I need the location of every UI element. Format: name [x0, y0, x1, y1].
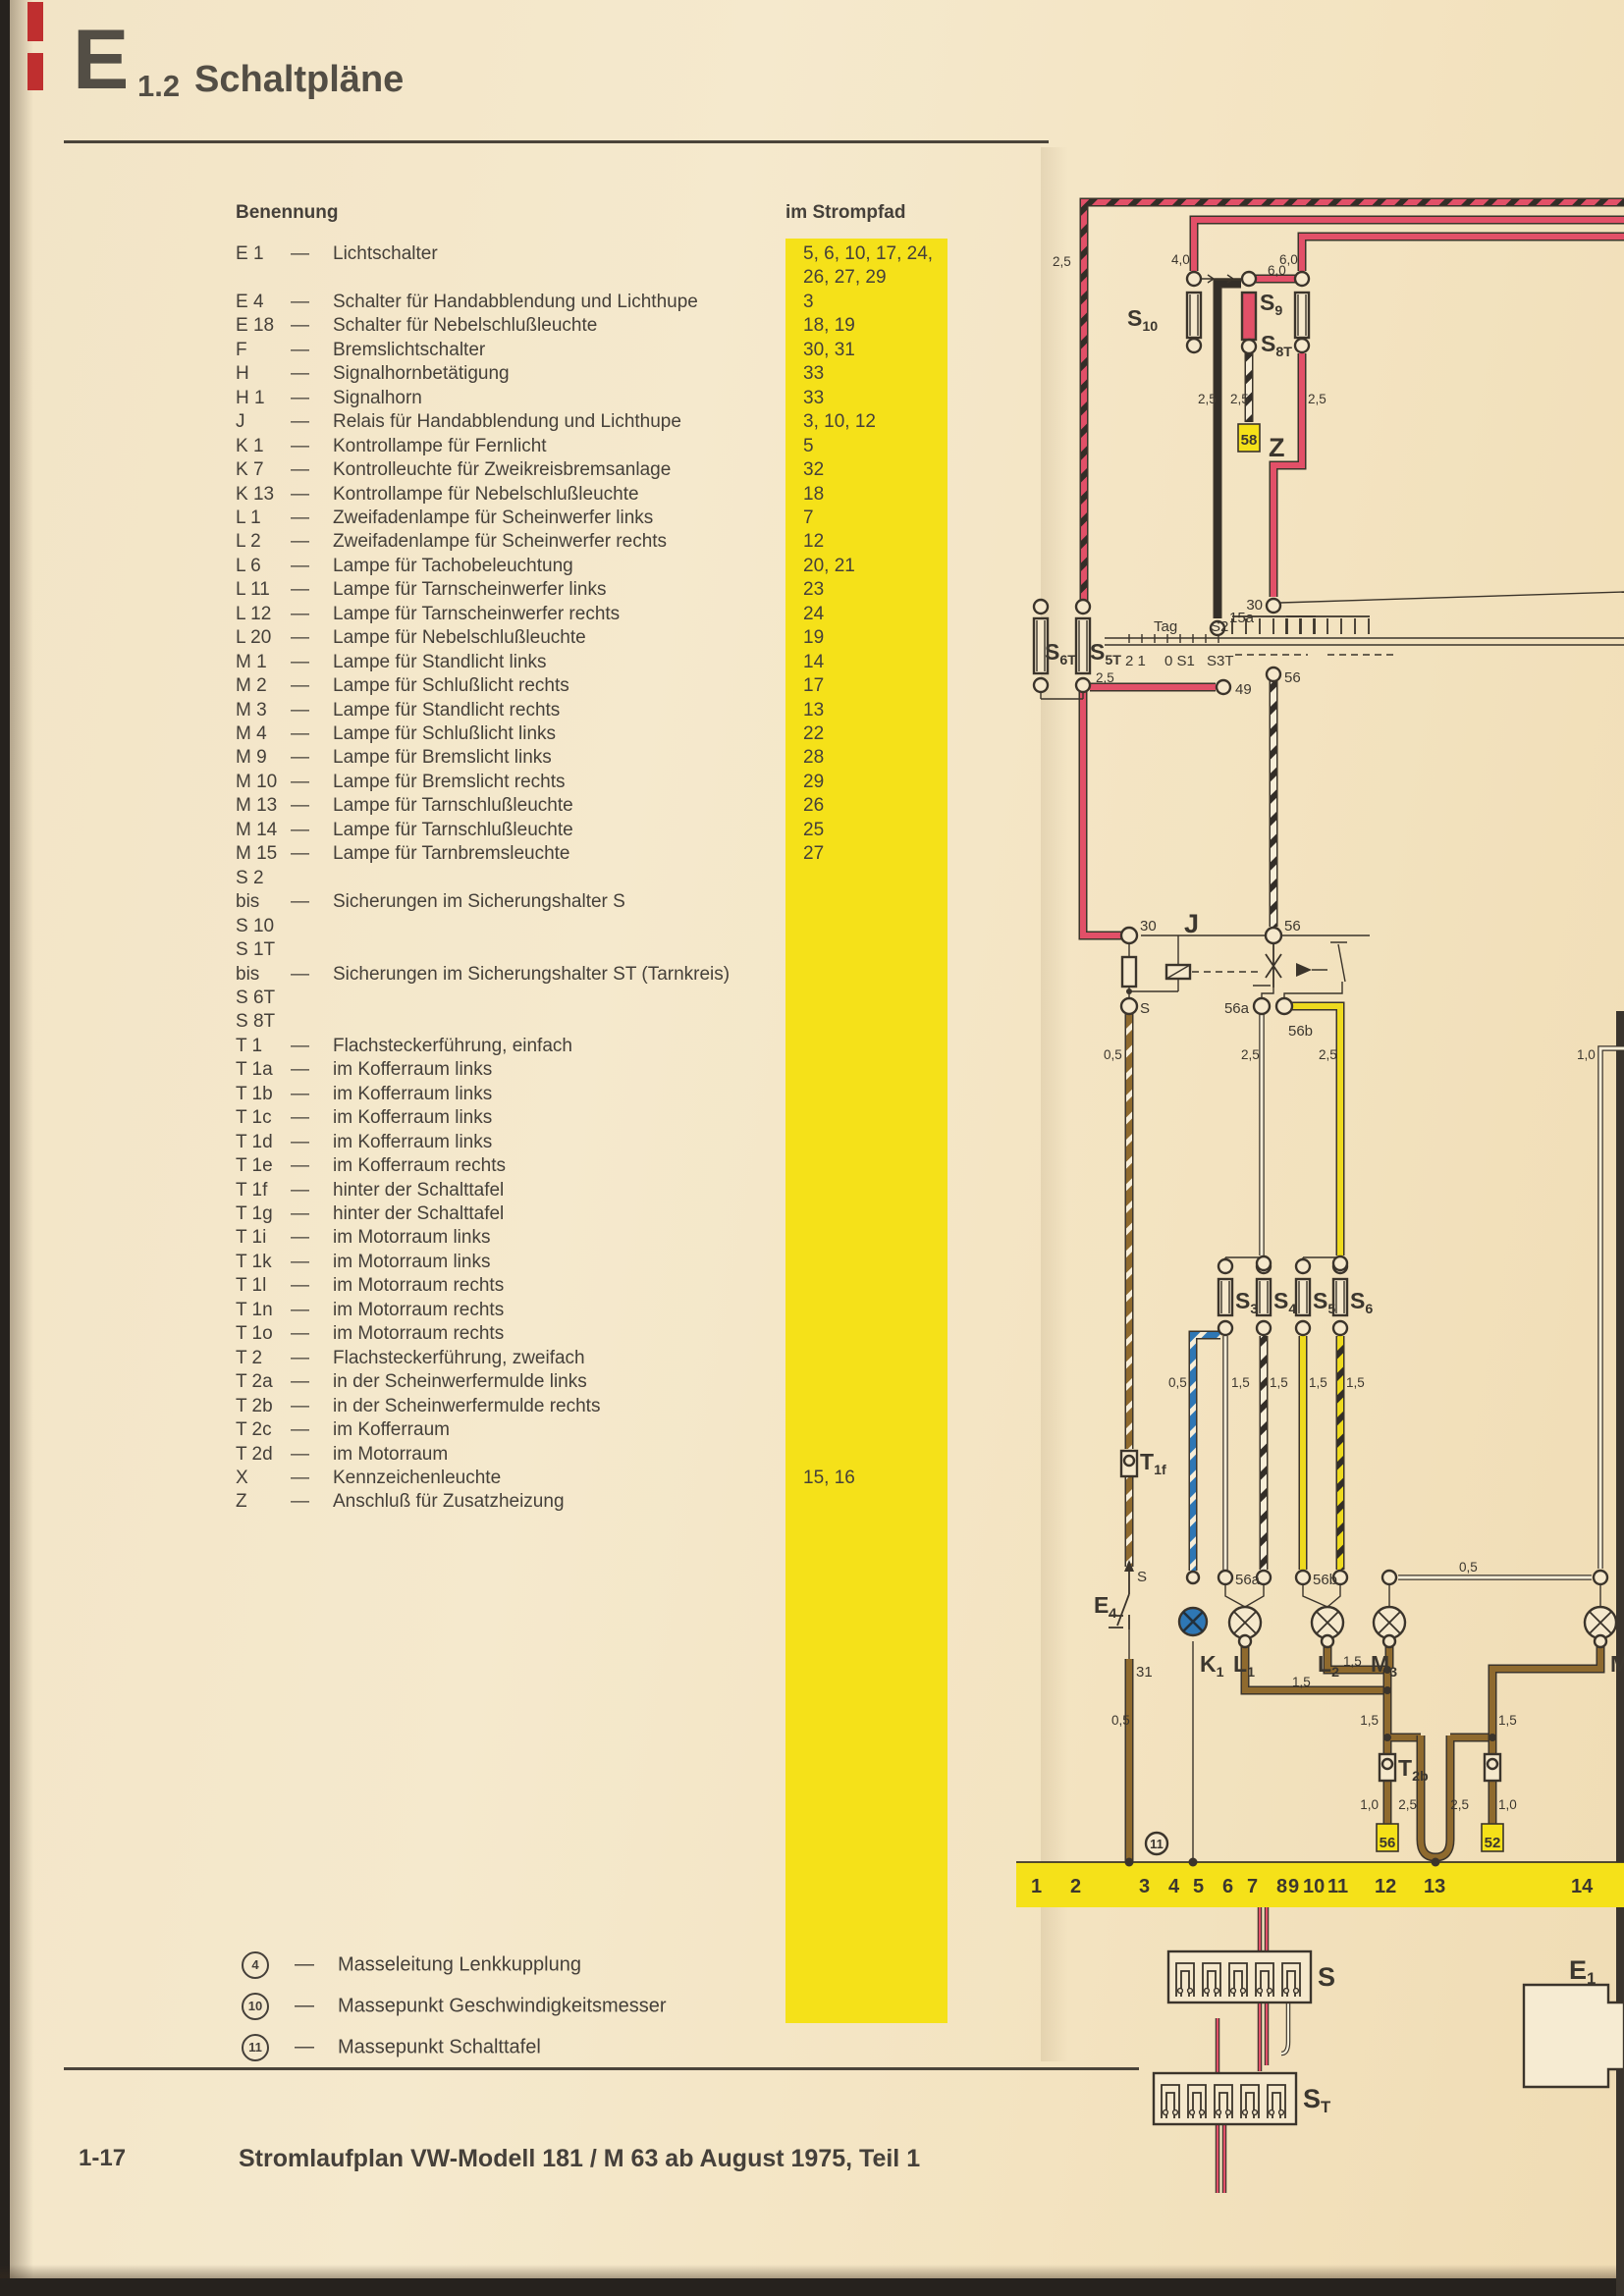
fuse-s3-label: S3 — [1235, 1288, 1258, 1317]
wire-gauge: 1,5 — [1343, 1654, 1362, 1669]
bus-number: 3 — [1139, 1876, 1150, 1897]
bus-number: 14 — [1571, 1876, 1594, 1897]
fuse-s8t — [1295, 272, 1309, 352]
bus-number: 7 — [1247, 1876, 1258, 1897]
terminal-30: 30 — [1246, 597, 1263, 614]
relay-terminal-56a: 56a — [1224, 1000, 1250, 1017]
wire-gauge: 0,5 — [1104, 1047, 1122, 1062]
wire-red-black-feed — [1084, 202, 1624, 601]
switch-e1-box — [1524, 1985, 1624, 2087]
red-wires-fuseholder — [1218, 1905, 1288, 2193]
terminal-z-label: Z — [1269, 433, 1285, 462]
fuseholder-s — [1168, 1951, 1311, 2002]
wire-gauge: 2,5 — [1053, 254, 1071, 269]
fuseholder-st-label: ST — [1303, 2084, 1331, 2116]
bus-number: 1 — [1031, 1876, 1042, 1897]
wire-gauge: 1,5 — [1292, 1675, 1311, 1689]
wire-gauge: 1,5 — [1360, 1713, 1379, 1728]
fuse-s9-label: S9 — [1260, 290, 1282, 319]
connector-t2b — [1380, 1754, 1395, 1781]
wire-gauge: 2,5 — [1319, 1047, 1337, 1062]
lamp-l2-label: L2 — [1318, 1651, 1339, 1681]
relay-terminal-56: 56 — [1284, 918, 1301, 934]
switch-pos-0s1: 0 S1 — [1164, 653, 1195, 669]
ground-point-11: 11 — [1150, 1837, 1164, 1851]
fuse-s6t-label: S6T — [1045, 639, 1076, 668]
lamp-k1 — [1179, 1572, 1207, 1635]
bus-number: 2 — [1070, 1876, 1081, 1897]
bus-number: 13 — [1424, 1876, 1445, 1897]
relay-terminal-30: 30 — [1140, 918, 1157, 934]
lamp-m3 — [1374, 1571, 1405, 1647]
switch-pos-s2: S2 — [1211, 618, 1228, 635]
junction-circle — [1257, 1256, 1271, 1270]
wire-gauge: 1,0 — [1498, 1797, 1517, 1812]
wire-gauge: 2,5 — [1308, 392, 1326, 406]
wire-gauge: 4,0 — [1171, 252, 1190, 267]
wire-blue — [1193, 1335, 1220, 1571]
junction-circle — [1333, 1256, 1347, 1270]
bus-number: 10 — [1303, 1876, 1325, 1897]
bus-number: 6 — [1222, 1876, 1233, 1897]
bus-number: 4 — [1168, 1876, 1180, 1897]
bus-number: 12 — [1375, 1876, 1396, 1897]
wire-tag-56: 56 — [1380, 1835, 1396, 1851]
wire-gauge: 2,5 — [1096, 670, 1114, 685]
wire-gauge: 1,0 — [1360, 1797, 1379, 1812]
connector-t1f — [1121, 1451, 1137, 1476]
wire-gauge: 2,5 — [1230, 392, 1249, 406]
lamp-k1-label: K1 — [1200, 1651, 1224, 1681]
wire-gauge: 1,0 — [1577, 1047, 1596, 1062]
bus-number: 5 — [1193, 1876, 1204, 1897]
wire-gauge: 2,5 — [1241, 1047, 1260, 1062]
fuse-s6-label: S6 — [1350, 1288, 1373, 1317]
switch-pos-s3t: S3T — [1207, 653, 1234, 669]
fuseholder-s-label: S — [1318, 1962, 1335, 1992]
lamp-m1 — [1585, 1571, 1616, 1647]
junction-dots — [1383, 1666, 1496, 1741]
manual-page: E 1.2 Schaltpläne Benennung im Strompfad… — [0, 0, 1624, 2296]
wire-gauge: 1,5 — [1498, 1713, 1517, 1728]
wire-gauge: 0,5 — [1168, 1375, 1187, 1390]
connector-t1f-label: T1f — [1140, 1449, 1166, 1478]
bus-number: 11 — [1327, 1876, 1348, 1897]
relay-j-label: J — [1184, 909, 1199, 938]
switch-e4-label: E4 — [1094, 1592, 1116, 1622]
terminal-49: 49 — [1235, 681, 1252, 698]
connector-t2a — [1485, 1754, 1500, 1781]
terminal-56b-lamp: 56b — [1313, 1572, 1337, 1588]
wire-gauge: 2,5 — [1450, 1797, 1469, 1812]
red-wires — [1083, 220, 1624, 935]
switch-pos-21: 2 1 — [1125, 653, 1146, 669]
fuse-s5t-label: S5T — [1090, 639, 1121, 668]
wire-gauge: 1,5 — [1309, 1375, 1327, 1390]
wire-gauge: 1,5 — [1231, 1375, 1250, 1390]
bus-number: 9 — [1288, 1876, 1299, 1897]
wire-tag-58: 58 — [1241, 432, 1258, 449]
wiring-diagram: S10S9S8TS6TS5TS3S4S5S6T1fT2bE4K1L1L2M3M1… — [0, 0, 1624, 2296]
relay-terminal-56b: 56b — [1288, 1023, 1313, 1040]
wire-gauge: 1,5 — [1270, 1375, 1288, 1390]
terminal-31: 31 — [1136, 1664, 1153, 1681]
fuse-s4-label: S4 — [1273, 1288, 1296, 1317]
lamp-m1-label: M1 — [1610, 1651, 1624, 1681]
wire-gauge: 0,5 — [1459, 1560, 1478, 1575]
switch-pos-tag: Tag — [1154, 618, 1177, 635]
terminal-56a-lamp: 56a — [1235, 1572, 1261, 1588]
lamp-l1-label: L1 — [1233, 1651, 1255, 1681]
wire-gauge: 1,5 — [1346, 1375, 1365, 1390]
fuse-s10-label: S10 — [1127, 305, 1158, 335]
wire-gauge: 2,5 — [1398, 1797, 1417, 1812]
fuse-s8t-label: S8T — [1261, 331, 1292, 360]
fuse-s10 — [1187, 272, 1201, 352]
terminal-56: 56 — [1284, 669, 1301, 686]
wire-gauge: 0,5 — [1111, 1713, 1130, 1728]
wire-gauge: 6,0 — [1268, 263, 1286, 278]
wire-tag-52: 52 — [1485, 1835, 1501, 1851]
bus-number: 8 — [1276, 1876, 1287, 1897]
switch-e1-label: E1 — [1569, 1955, 1596, 1988]
terminal-s-e4: S — [1137, 1569, 1147, 1585]
relay-terminal-s: S — [1140, 1000, 1150, 1017]
fuseholder-st — [1154, 2073, 1296, 2124]
wire-gauge: 2,5 — [1198, 392, 1217, 406]
